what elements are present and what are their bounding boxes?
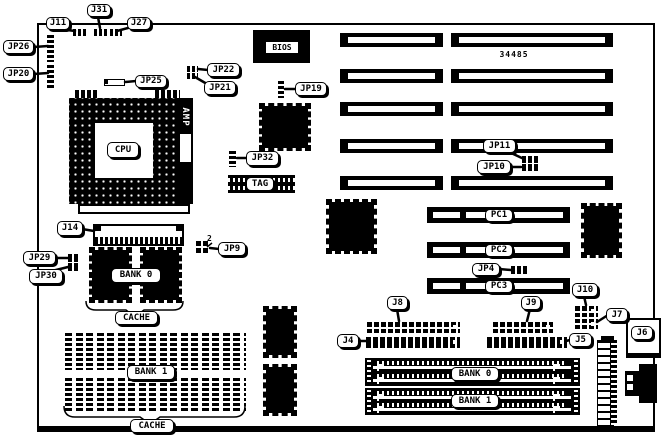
pc2-label: PC2 <box>485 244 513 257</box>
j14-socket-pins <box>95 237 182 244</box>
isa-slot-5-left <box>340 176 443 190</box>
cache-label-bottom: CACHE <box>130 419 174 433</box>
isa-slot-1-right <box>451 33 613 47</box>
jp30-jumper <box>68 263 80 271</box>
keyboard-connector-notch1 <box>627 375 633 381</box>
j5-label: J5 <box>569 333 592 347</box>
isa-slot-3-right <box>451 102 613 116</box>
jp19-jumper <box>278 81 284 98</box>
j27-connector <box>110 29 122 36</box>
chipset-qfp-2 <box>326 199 377 254</box>
jp9-label: JP9 <box>218 242 246 256</box>
jp10-label: JP10 <box>477 160 511 174</box>
j31-connector <box>94 29 107 36</box>
simm-bank0-label: BANK 0 <box>451 367 499 381</box>
isa-slot-4-right <box>451 139 613 153</box>
amp-connector: AMP <box>178 98 193 204</box>
isa-slot-2-left <box>340 69 443 83</box>
chipset-qfp-1 <box>259 103 311 151</box>
jp32-label: JP32 <box>246 151 279 166</box>
j14-label: J14 <box>57 221 83 236</box>
isa-slot-3-left <box>340 102 443 116</box>
j9-label: J9 <box>521 296 541 310</box>
j4-label: J4 <box>337 334 359 348</box>
j8-header <box>367 322 460 333</box>
jp30-label: JP30 <box>29 269 63 284</box>
board-number: 34485 <box>496 51 532 59</box>
jp22-label: JP22 <box>207 63 240 77</box>
pc1-label: PC1 <box>485 209 513 222</box>
j6-label: J6 <box>631 326 653 340</box>
chipset-qfp-5 <box>263 364 297 416</box>
power-connector <box>597 336 618 429</box>
j5-header <box>487 337 567 348</box>
jp10-jumper <box>522 164 538 171</box>
simm-bank1-label: BANK 1 <box>451 394 499 408</box>
j8-label: J8 <box>387 296 408 310</box>
isa-slot-5-right <box>451 176 613 190</box>
keyboard-connector <box>639 364 657 403</box>
jp4-jumper <box>511 266 528 274</box>
jp26-label: JP26 <box>3 40 34 54</box>
jp21-label: JP21 <box>204 81 236 95</box>
cpu-bottom-connector <box>78 204 190 214</box>
chipset-qfp-3 <box>581 203 622 258</box>
jp26-header <box>47 35 54 62</box>
jp9-jumper <box>196 241 209 255</box>
pc3-label: PC3 <box>485 280 513 293</box>
cache-bank0-label: BANK 0 <box>111 268 161 283</box>
jp11-label: JP11 <box>483 139 516 153</box>
isa-slot-1-left <box>340 33 443 47</box>
j10-header <box>575 306 598 317</box>
jp22-jumper <box>187 66 198 72</box>
jp29-jumper <box>68 254 80 262</box>
jp20-header <box>47 65 54 89</box>
j31-label: J31 <box>87 4 111 17</box>
j11-connector <box>73 29 88 36</box>
isa-slot-2-right <box>451 69 613 83</box>
jp19-label: JP19 <box>295 82 327 96</box>
chipset-qfp-4 <box>263 306 297 358</box>
cpu-label: CPU <box>107 142 139 158</box>
jp29-label: JP29 <box>23 251 56 265</box>
j9-header <box>493 322 553 333</box>
keyboard-connector-notch2 <box>627 384 633 390</box>
cache-label-top: CACHE <box>115 311 158 325</box>
tag-label: TAG <box>246 177 274 191</box>
j7-header <box>575 319 598 329</box>
bios-chip-label: BIOS <box>266 42 298 53</box>
jp21-jumper <box>187 73 198 79</box>
j14-socket <box>93 224 184 246</box>
jp4-label: JP4 <box>472 263 500 276</box>
j4-header <box>366 337 460 348</box>
motherboard-diagram: 34485 BIOS CPU AMP TAG BANK 0 CACHE BANK… <box>0 0 661 438</box>
jp20-label: JP20 <box>3 67 34 81</box>
j11-label: J11 <box>46 17 70 30</box>
amp-connector-window <box>180 134 191 162</box>
j7-label: J7 <box>606 308 628 322</box>
jp25-label: JP25 <box>135 75 167 88</box>
amp-connector-label: AMP <box>180 97 190 137</box>
isa-slot-4-left <box>340 139 443 153</box>
jp32-jumper <box>229 151 236 167</box>
jp9-pin2-marker: 2 <box>207 235 212 243</box>
jp25-connector <box>104 79 125 86</box>
j27-label: J27 <box>127 17 151 30</box>
jp11-jumper <box>522 156 538 163</box>
cache-bank1-label: BANK 1 <box>127 365 175 380</box>
j10-label: J10 <box>572 283 598 297</box>
